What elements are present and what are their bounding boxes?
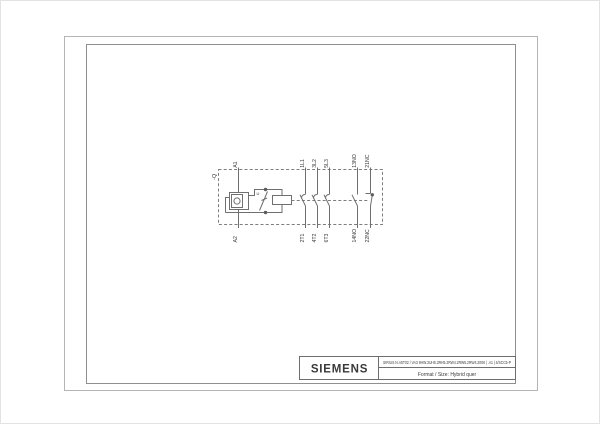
device-tag-label: -Q [212, 173, 218, 180]
linkage-dot [371, 193, 374, 196]
terminal-label-14no: 14NO [352, 229, 358, 243]
terminal-label-4t2: 4T2 [312, 233, 318, 242]
outer-frame [65, 37, 538, 391]
title-block: SIEMENS SIRIUS N.A5T02 / VA3 9HW.3UH5.3R… [300, 357, 516, 380]
inner-frame [87, 45, 516, 384]
drawing-page: -Q A1 A2 U [0, 0, 600, 424]
terminal-label-5l3: 5L3 [324, 159, 330, 168]
drawing-frames [65, 37, 538, 391]
terminal-label-6t3: 6T3 [324, 233, 330, 242]
terminal-label-a1: A1 [233, 161, 239, 167]
terminal-label-22nc: 22NC [365, 229, 371, 243]
coil-indicator-icon [234, 198, 240, 204]
coil-symbol [230, 193, 249, 210]
suppressor-label: U [257, 191, 260, 196]
main-pole-1: 1L1 2T1 [300, 159, 306, 242]
terminal-label-a2: A2 [233, 236, 239, 242]
coil-terminal-a1: A1 [233, 161, 239, 192]
branch-bottom-rail [226, 205, 283, 213]
aux-contact-nc: 21NC 22NC [365, 154, 374, 242]
junction-dot-bottom [264, 211, 267, 214]
contactor-schematic: -Q A1 A2 U [212, 154, 383, 242]
format-size-label: Format / Size: Hybrid quer [418, 372, 477, 378]
terminal-label-21nc: 21NC [365, 154, 371, 168]
terminal-label-1l1: 1L1 [300, 159, 306, 168]
coil-yoke-outline [226, 198, 230, 213]
coil-inner-box [232, 195, 243, 208]
electronics-block [273, 196, 292, 205]
aux-contact-no: 13NO 14NO [352, 154, 358, 242]
terminal-label-3l2: 3L2 [312, 159, 318, 168]
coil-terminal-a2: A2 [233, 210, 239, 243]
junction-dot-top [264, 188, 267, 191]
terminal-label-2t1: 2T1 [300, 233, 306, 242]
brand-logo: SIEMENS [311, 364, 368, 376]
doc-reference: SIRIUS N.A5T02 / VA3 9HW.3UH5.3RH5.2RW4.… [383, 360, 511, 365]
suppressor-diagonal [260, 192, 268, 211]
terminal-label-13no: 13NO [352, 154, 358, 168]
